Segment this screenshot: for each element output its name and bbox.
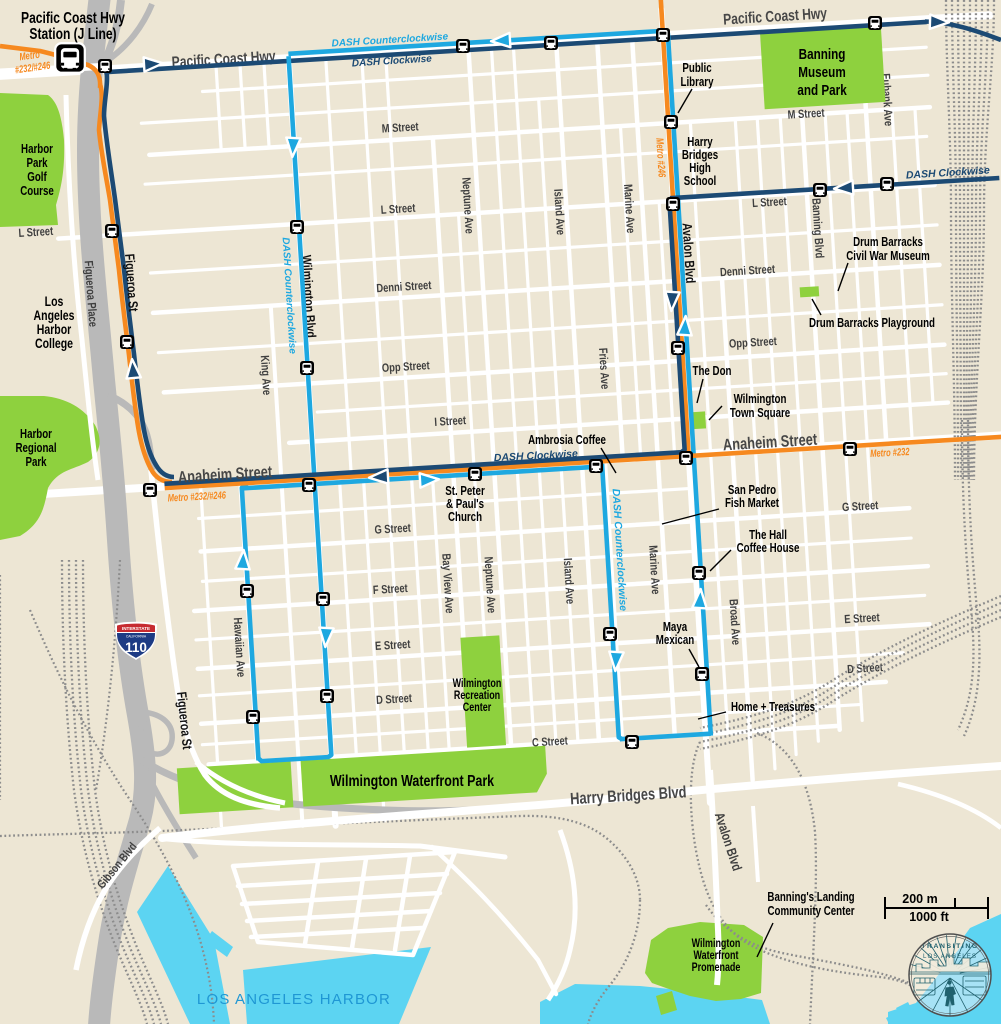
svg-text:G Street: G Street [374,522,411,538]
svg-text:Public: Public [682,62,711,75]
svg-text:E Street: E Street [844,611,880,627]
svg-text:Wilmington: Wilmington [453,678,502,690]
svg-text:Wilmington: Wilmington [734,393,787,406]
svg-text:High: High [689,162,711,175]
svg-text:Metro #246: Metro #246 [654,138,668,179]
svg-text:Drum Barracks Playground: Drum Barracks Playground [809,317,935,330]
svg-text:Harbor: Harbor [20,428,52,441]
svg-text:D Street: D Street [376,692,413,708]
svg-text:Course: Course [20,185,54,198]
svg-text:Recreation: Recreation [454,690,500,702]
svg-text:Home + Treasures: Home + Treasures [731,701,815,714]
svg-text:Banning's Landing: Banning's Landing [767,891,854,904]
svg-text:Town Square: Town Square [730,407,790,420]
svg-text:M Street: M Street [381,120,419,136]
svg-text:Mexican: Mexican [656,634,695,647]
svg-text:College: College [35,336,73,352]
svg-text:Maya: Maya [663,621,688,634]
svg-text:Bridges: Bridges [682,149,718,162]
svg-text:The Hall: The Hall [749,529,787,542]
svg-text:G Street: G Street [842,499,879,515]
svg-text:Center: Center [463,702,491,714]
svg-text:Park: Park [26,157,48,170]
svg-text:Park: Park [25,456,47,469]
svg-text:CALIFORNIA: CALIFORNIA [126,634,147,638]
svg-text:Fish Market: Fish Market [725,497,779,510]
svg-text:Museum: Museum [798,64,845,81]
svg-text:Broad Ave: Broad Ave [726,599,742,646]
svg-text:Island Ave: Island Ave [560,558,576,605]
svg-text:Island Ave: Island Ave [551,189,567,236]
svg-text:Harry: Harry [687,136,713,149]
svg-text:TRANSITING: TRANSITING [921,943,979,950]
svg-text:Ambrosia Coffee: Ambrosia Coffee [528,434,606,447]
svg-text:Fries Ave: Fries Ave [596,347,612,389]
svg-text:Wilmington: Wilmington [692,938,741,950]
svg-text:and Park: and Park [797,82,847,99]
svg-text:Harbor: Harbor [21,143,53,156]
svg-text:School: School [684,175,716,188]
svg-text:Coffee House: Coffee House [737,542,800,555]
svg-text:Waterfront: Waterfront [694,950,739,962]
svg-text:King Ave: King Ave [257,355,273,396]
svg-text:& Paul's: & Paul's [446,498,484,511]
svg-text:INTERSTATE: INTERSTATE [122,626,150,631]
svg-text:Library: Library [681,76,715,89]
svg-text:L Street: L Street [380,202,416,217]
svg-text:L Street: L Street [18,225,54,240]
svg-text:Promenade: Promenade [692,962,741,974]
svg-text:Banning: Banning [799,46,846,63]
svg-text:Station (J Line): Station (J Line) [29,25,116,43]
svg-text:200 m: 200 m [902,892,937,906]
svg-text:I Street: I Street [434,414,467,429]
svg-text:Church: Church [448,511,482,524]
svg-text:Metro #232: Metro #232 [870,446,910,460]
svg-text:Community Center: Community Center [767,905,855,918]
svg-text:St. Peter: St. Peter [445,485,485,498]
svg-text:F Street: F Street [373,582,409,598]
svg-text:110: 110 [125,640,147,655]
svg-text:San Pedro: San Pedro [728,484,776,497]
svg-text:Civil War Museum: Civil War Museum [846,250,929,263]
svg-text:E Street: E Street [375,638,411,654]
svg-text:LOS ANGELES: LOS ANGELES [923,953,977,960]
svg-text:L Street: L Street [752,195,788,210]
svg-text:LOS ANGELES HARBOR: LOS ANGELES HARBOR [197,991,391,1008]
svg-text:The Don: The Don [693,365,732,378]
svg-text:Regional: Regional [15,442,56,455]
svg-text:M Street: M Street [787,107,825,123]
svg-text:Golf: Golf [27,171,47,184]
svg-text:1000 ft: 1000 ft [909,910,949,924]
svg-text:Wilmington Waterfront Park: Wilmington Waterfront Park [330,773,494,791]
svg-text:Drum Barracks: Drum Barracks [853,236,923,249]
